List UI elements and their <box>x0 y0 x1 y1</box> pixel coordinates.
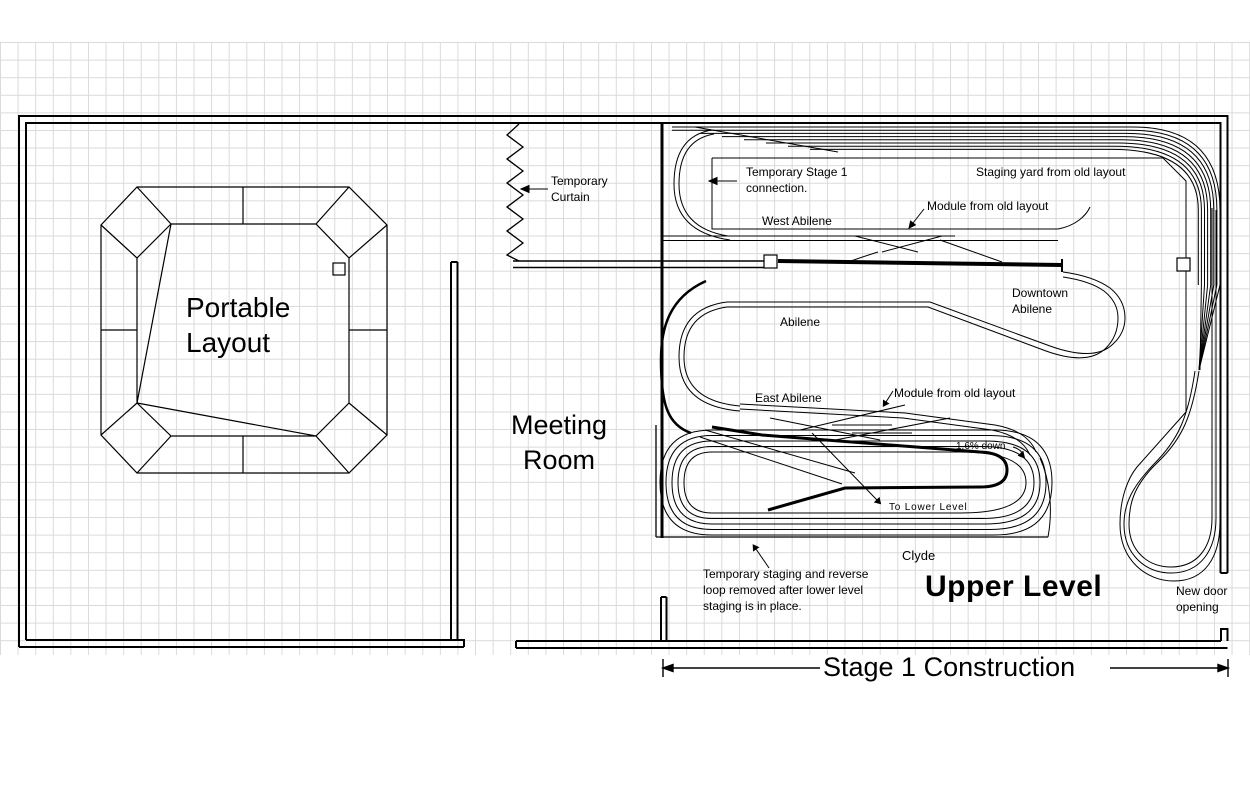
module-connector-square <box>333 263 345 275</box>
meeting-room-divider-wall <box>451 262 458 640</box>
dimension-arrow-right <box>1218 665 1228 672</box>
stage1-arrow-head <box>709 178 717 185</box>
bottom-right-wall <box>516 641 1228 648</box>
module-top-arrow-line <box>913 209 924 223</box>
new-door-opening-label: New door opening <box>1176 584 1227 615</box>
staging-ladder <box>700 430 855 484</box>
meeting-room-label: Meeting Room <box>497 408 621 477</box>
module-mid-arrow-line <box>886 391 893 402</box>
door-reverse-loop-track <box>1124 208 1216 573</box>
connection-shelf-edges <box>513 261 764 268</box>
temporary-stage1-label: Temporary Stage 1 connection. <box>746 165 847 196</box>
module-from-old-layout-mid-label: Module from old layout <box>894 386 1015 402</box>
downtown-shelf-heavy-bar <box>778 261 1062 265</box>
bottom-wall-stub <box>661 597 667 641</box>
staging-yard-tracks <box>672 127 1220 370</box>
track-plan-page: Portable Layout Meeting Room Upper Level… <box>0 0 1250 786</box>
layout-benchwork <box>513 122 1220 581</box>
new-door-jamb <box>1221 629 1228 641</box>
abilene-west-loop <box>679 302 740 411</box>
staging-yard-label: Staging yard from old layout <box>976 165 1125 181</box>
staging-note-label: Temporary staging and reverse loop remov… <box>703 566 868 615</box>
grade-label: 1.6% down <box>956 440 1005 453</box>
curtain-arrow-head <box>521 186 529 193</box>
portable-layout-label: Portable Layout <box>186 290 290 361</box>
dimension-arrow-left <box>663 665 673 672</box>
temporary-curtain-zigzag <box>507 124 523 261</box>
east-abilene-label: East Abilene <box>755 391 822 407</box>
downtown-abilene-label: Downtown Abilene <box>1012 286 1068 317</box>
abilene-label: Abilene <box>780 315 820 331</box>
module-connector-square <box>764 255 777 268</box>
staging-note-arrow-head <box>753 545 758 551</box>
clyde-label: Clyde <box>902 548 935 565</box>
stage1-construction-label: Stage 1 Construction <box>823 650 1075 685</box>
module-top-arrow-head <box>909 221 915 228</box>
temporary-curtain-label: Temporary Curtain <box>551 174 608 205</box>
abilene-west-loop-inner <box>684 307 740 406</box>
upper-level-label: Upper Level <box>925 567 1102 606</box>
to-lower-level-label: To Lower Level <box>889 501 967 514</box>
grade-arrow-head <box>1019 452 1025 459</box>
module-connector-square <box>1177 258 1190 271</box>
module-from-old-layout-top-label: Module from old layout <box>927 199 1048 215</box>
west-abilene-module-tracks <box>662 236 1058 262</box>
stage1-connection-loop <box>674 130 730 240</box>
west-abilene-label: West Abilene <box>762 214 832 230</box>
bottom-left-wall <box>19 640 464 647</box>
